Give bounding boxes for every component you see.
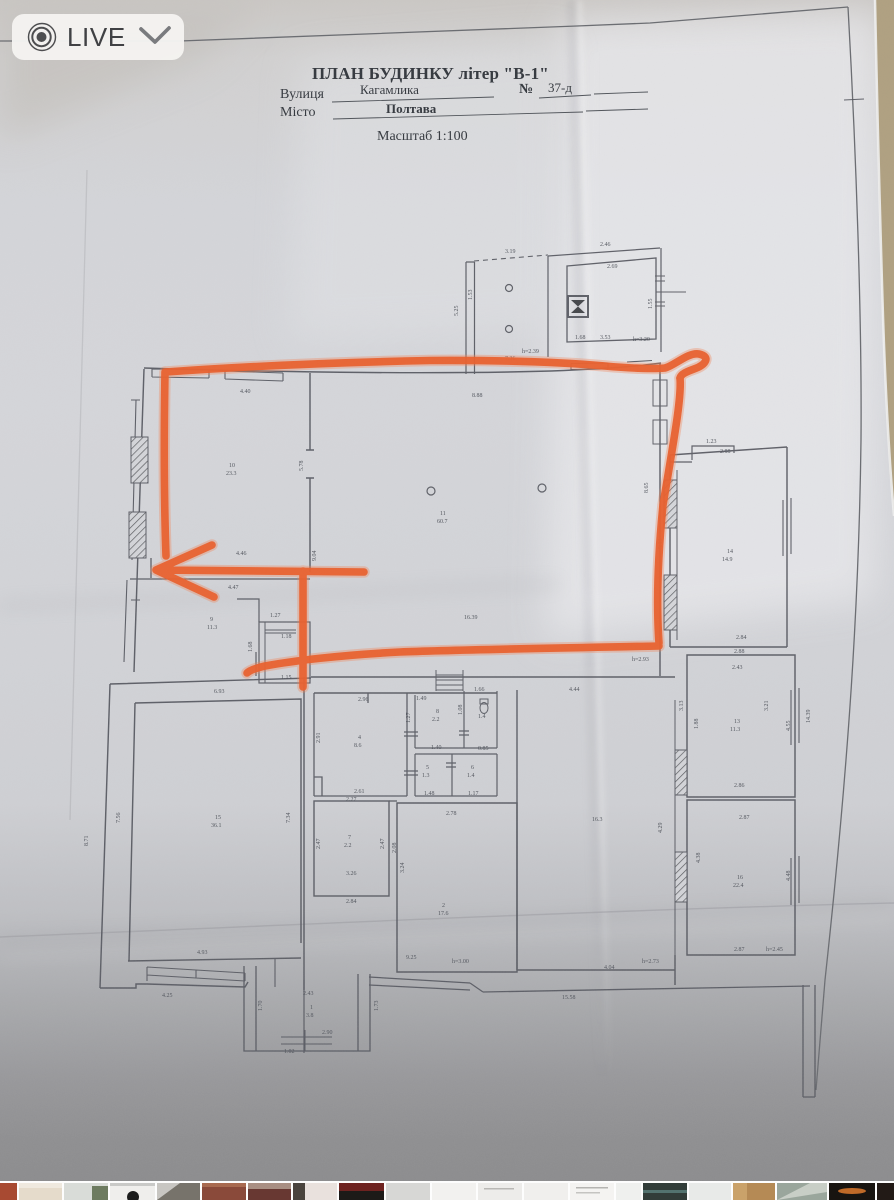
svg-text:LIVE: LIVE [67, 22, 126, 52]
